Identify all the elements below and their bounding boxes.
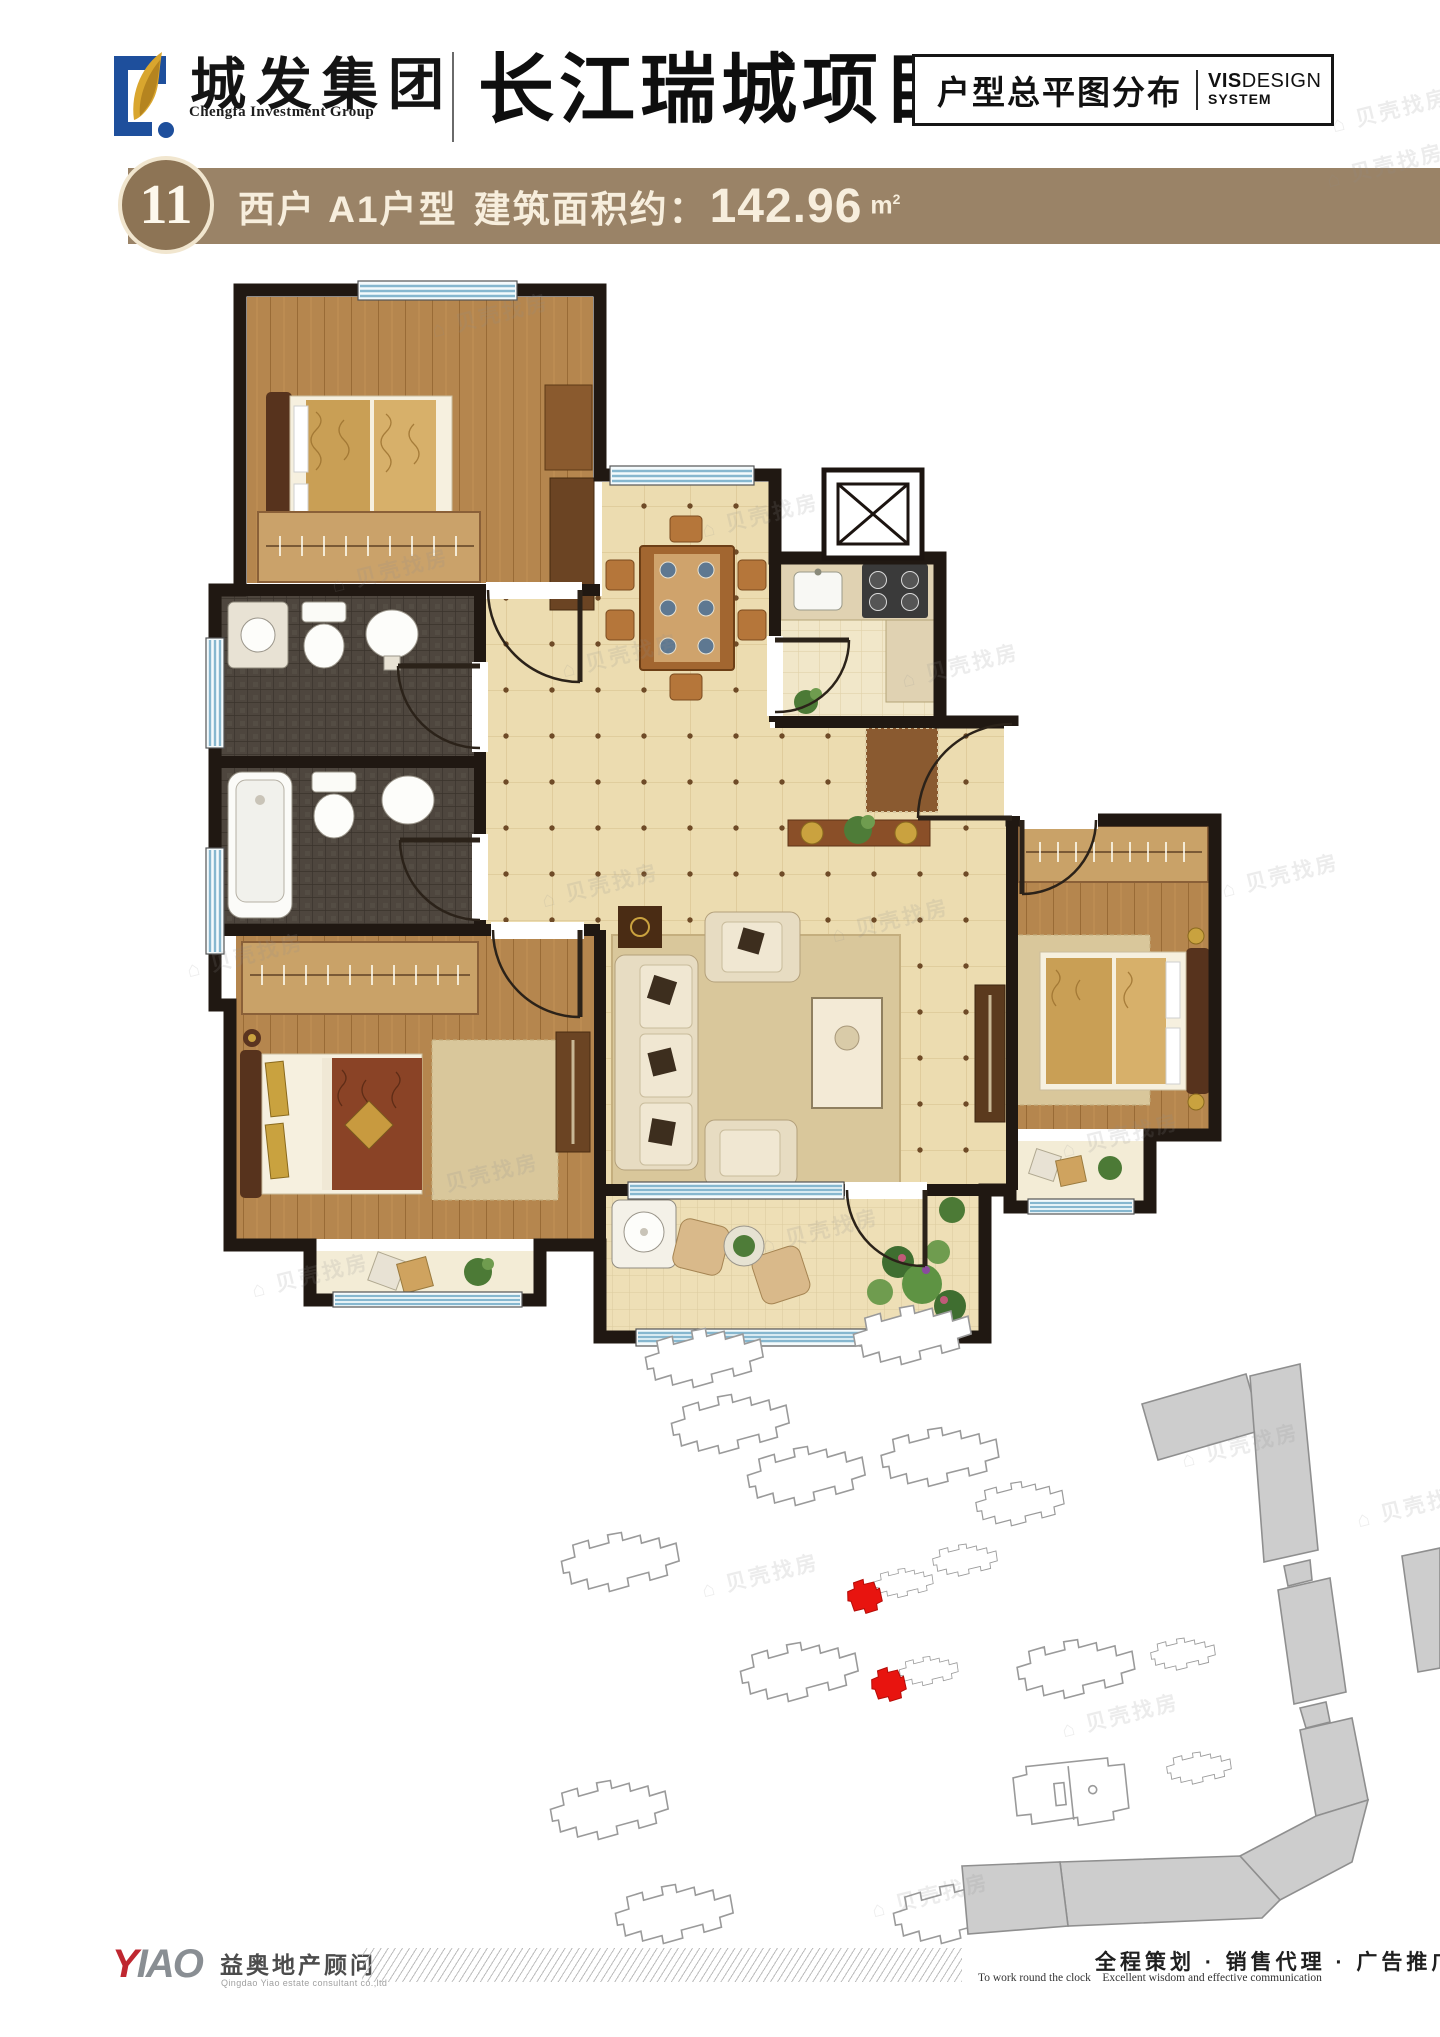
area-unit: m2 [870,191,900,220]
site-buildings [547,1296,1250,1950]
vis-rest: DESIGN [1242,70,1322,92]
unit-number: 11 [140,173,193,237]
site-plan [547,1296,1440,1950]
page: 城发集团 Chengfa Investment Group 长江瑞城项目 户型总… [0,0,1440,2037]
agency-name: 益奥地产顾问 [220,1946,376,1980]
coffee-table [812,998,882,1108]
bathroom-upper-fixtures [228,602,418,670]
window-bath-lower-left [206,848,224,954]
plant-icon [1098,1156,1122,1180]
window-bay-right [1028,1199,1134,1214]
desk [545,385,592,470]
wardrobe [242,942,478,1014]
wardrobe [1018,826,1208,882]
vis-separator [1196,70,1198,110]
plant-icon [939,1197,965,1223]
side-table [618,906,662,948]
area-label: 建筑面积约： [474,179,708,233]
services-text-en: To work round the clock Excellent wisdom… [978,1972,1322,1984]
elevator-shaft [824,470,922,558]
unit-type: 西户 A1户型 [238,179,458,233]
window-dining-top [610,466,754,485]
agency-logo: YIAO [112,1942,202,1987]
header-divider [452,52,454,142]
lamp-icon [1188,1094,1204,1110]
area-value: 142.96 [710,179,863,234]
rug [432,1040,558,1200]
company-name-en: Chengfa Investment Group [189,104,374,121]
lamp-icon [1188,928,1204,944]
clubhouse-building [1012,1756,1130,1831]
footer-hatch-pattern [362,1948,962,1982]
unit-number-badge: 11 [118,156,214,254]
window-bay-left [333,1292,522,1307]
window-living-balcony [628,1182,844,1199]
floor-plan [0,225,1440,1960]
bedroom-right-furniture [1012,826,1210,1110]
vis-system: SYSTEM [1208,91,1272,107]
watermark-text: ⌂ 贝壳找房 [1328,81,1440,139]
vis-logo: VISDESIGN SYSTEM [1208,71,1321,109]
page-title: 长江瑞城项目 [478,28,964,138]
vis-design-box: 户型总平图分布 VISDESIGN SYSTEM [912,54,1334,126]
vis-bold: VIS [1208,70,1242,92]
wardrobe-top-left [258,512,480,582]
entry-rug [866,728,938,812]
chengfa-c-leaf-logo [100,50,182,142]
window-bedroom-top [358,281,517,300]
window-bath-upper-left [206,638,224,748]
unit-banner-text: 西户 A1户型 建筑面积约： 142.96 m2 [238,168,900,244]
box-label: 户型总平图分布 [915,66,1182,114]
